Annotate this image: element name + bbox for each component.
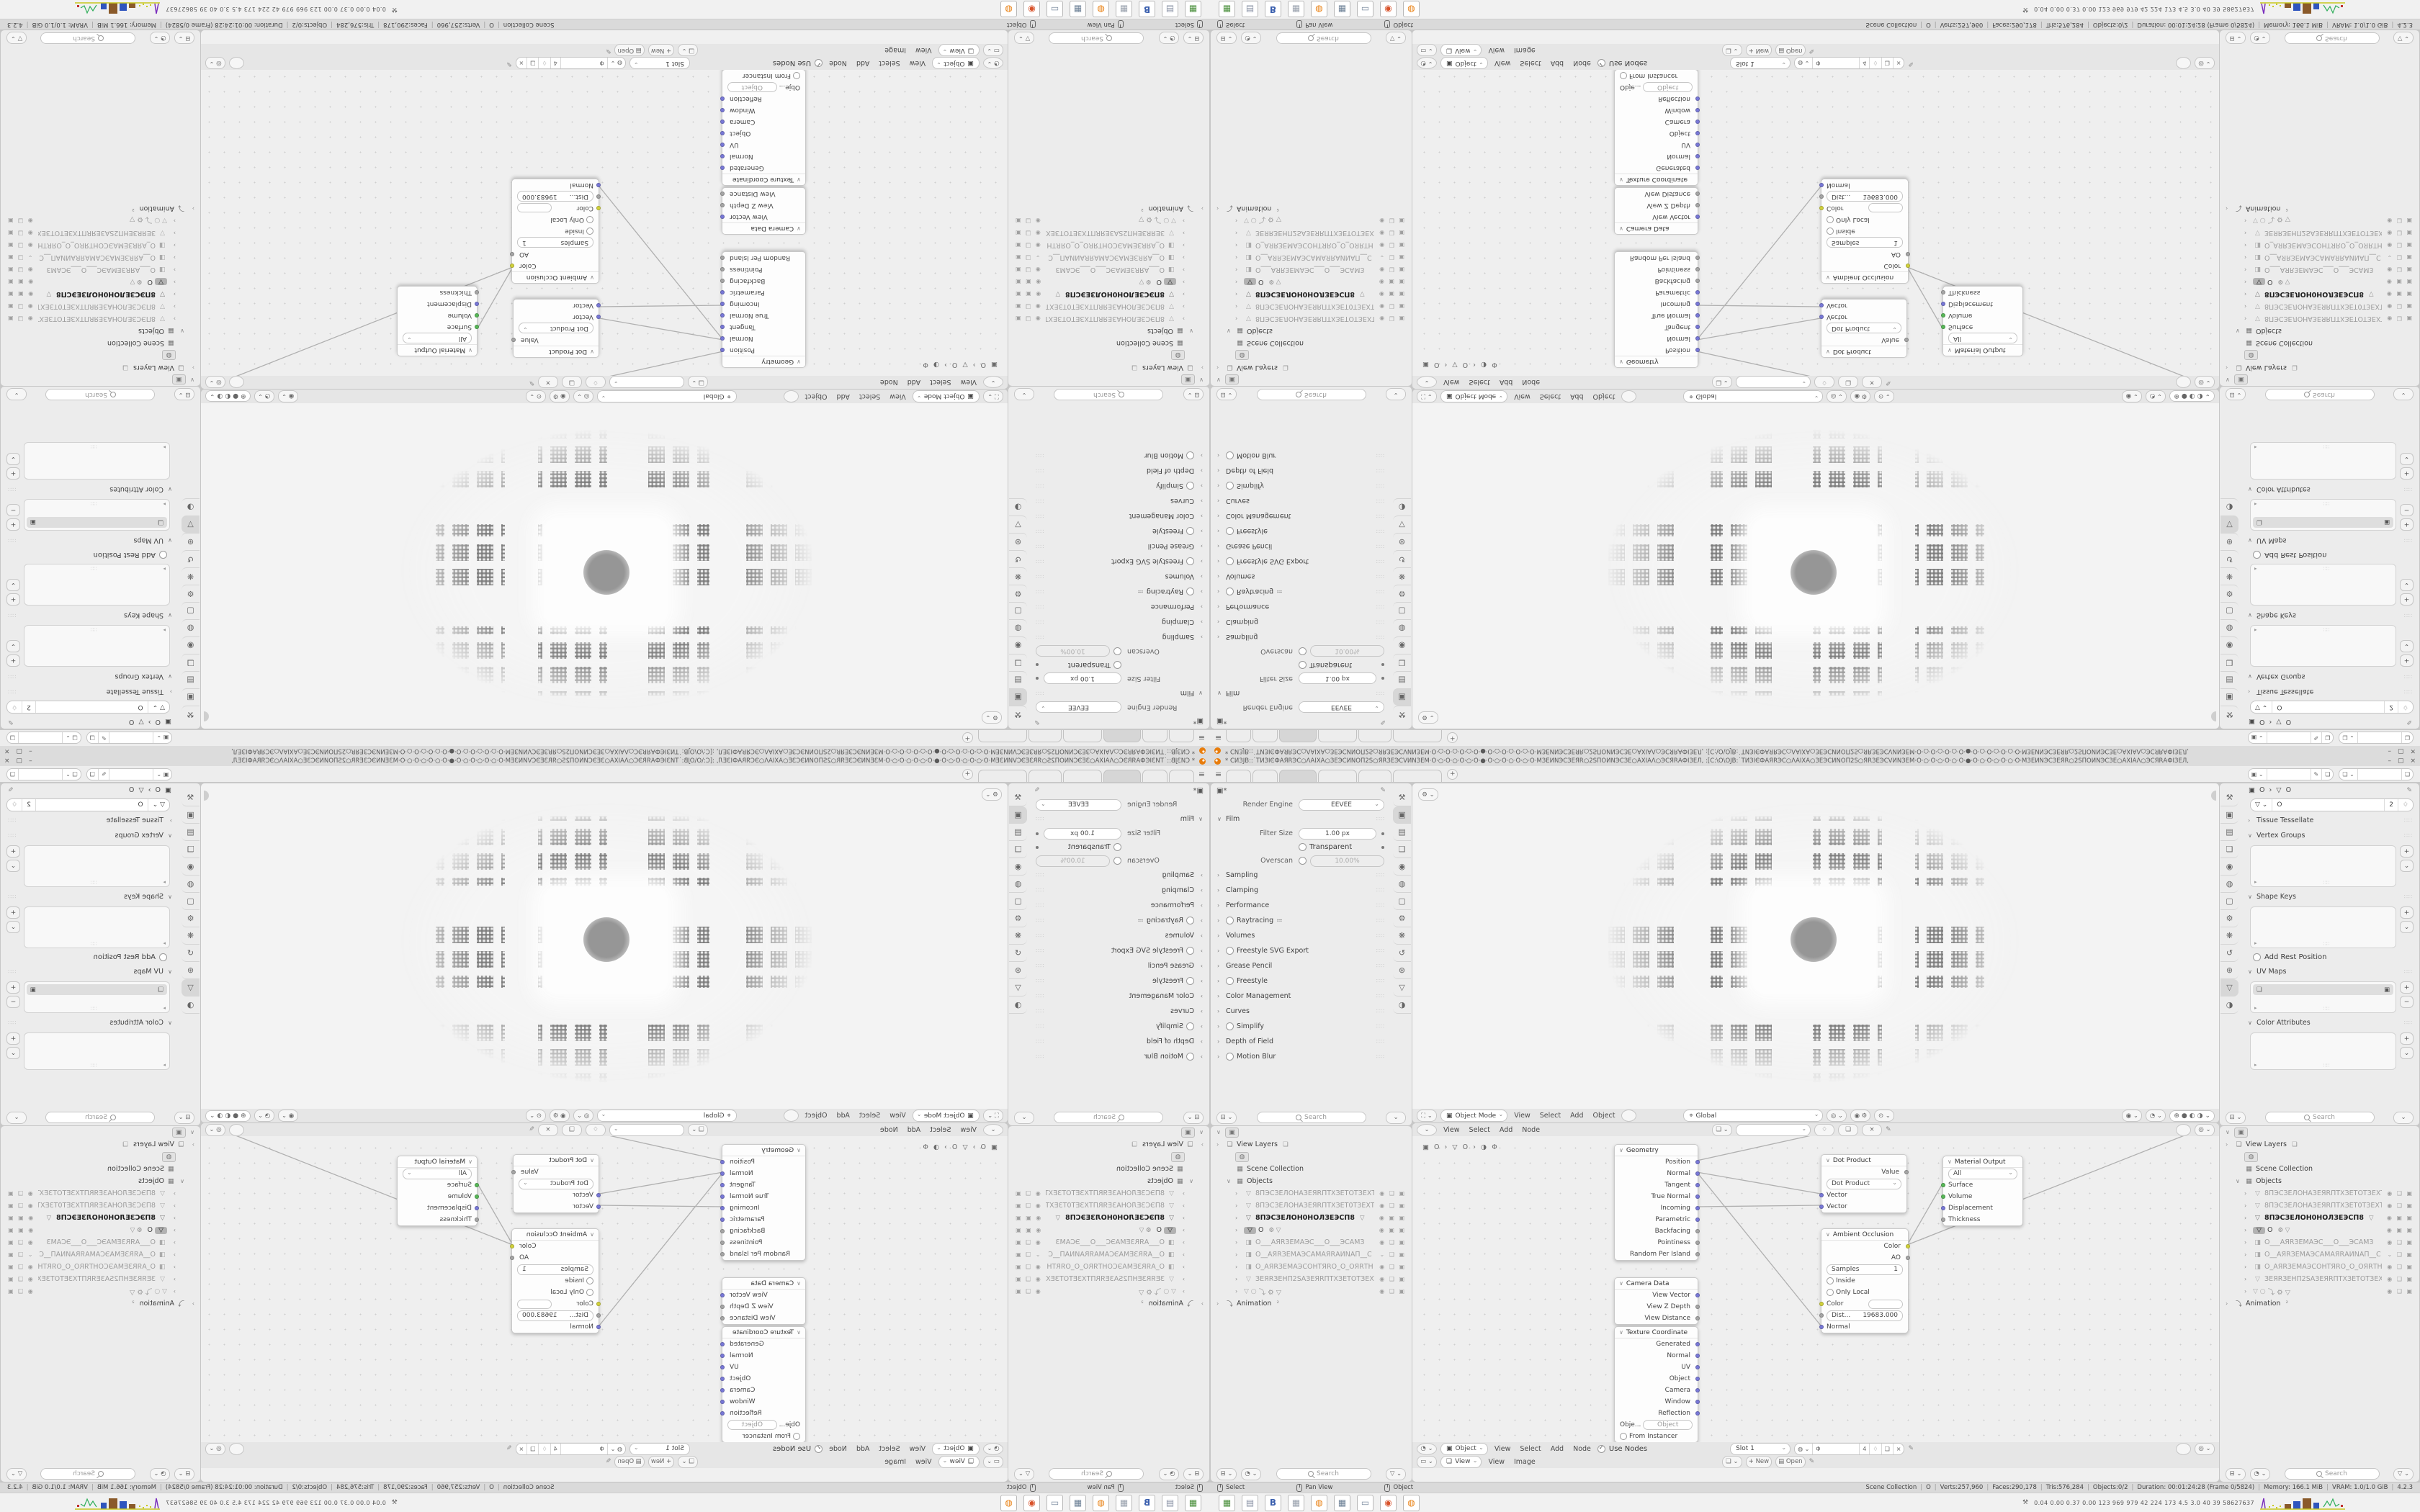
menu-hamburger-icon[interactable]: ≡ xyxy=(1198,770,1205,779)
shading-chevron[interactable]: ⌄ xyxy=(2205,1112,2210,1120)
shader-node[interactable]: ∨Ambient Occlusion Color AO Samples xyxy=(1821,1228,1909,1333)
gizmo-button[interactable]: ⊙ ⌄ xyxy=(1874,1110,1894,1122)
section-header[interactable]: › Motion Blur∷∷ xyxy=(1211,1049,1391,1064)
proportional-edit-button[interactable]: ◉ ⚙ xyxy=(550,390,570,402)
properties-tab-icon[interactable]: ⚒ xyxy=(1009,789,1027,806)
workspace-tab[interactable] xyxy=(1063,730,1102,742)
shading-solid-icon[interactable]: ● xyxy=(233,393,238,400)
uv-map-item[interactable]: ❏▣ xyxy=(2253,984,2393,995)
footer-extra-button[interactable] xyxy=(2176,58,2191,70)
shader-node[interactable]: ∨Dot Product Value Dot Product Vect xyxy=(513,1154,599,1213)
visibility-icons[interactable]: ◉ ▣ ▣ xyxy=(2387,291,2414,297)
shape-keys-listbox[interactable]: ▸∷∷ xyxy=(2250,564,2396,606)
node-row[interactable]: Object xyxy=(722,127,805,139)
node-row[interactable]: Value xyxy=(514,1166,599,1178)
pin-icon[interactable]: ✎ xyxy=(1380,787,1386,794)
filter-button[interactable]: ▽ ⌄ xyxy=(2393,1468,2414,1480)
add-workspace-button[interactable]: + xyxy=(962,769,973,780)
outliner-row[interactable]: ◍ xyxy=(2220,349,2419,361)
outliner-row[interactable]: › ▽ ЗЕЯRЗЕНП2SАЗЕЯRПТХЗЕТОТЗЕХТ ◉ ❑ ▣ xyxy=(1008,1273,1209,1285)
mesh-name[interactable]: O xyxy=(36,701,148,713)
output-socket[interactable] xyxy=(1695,108,1700,112)
outliner-row[interactable]: › ⤵ Animation ² xyxy=(1,1297,200,1310)
search-input[interactable]: Search xyxy=(2285,32,2380,44)
render-engine-dropdown[interactable]: EEVEE xyxy=(1036,702,1121,714)
output-socket[interactable] xyxy=(1695,120,1700,124)
section-header[interactable]: › Freestyle∷∷ xyxy=(1211,523,1391,539)
outliner-row[interactable]: › ◨ O___AЯRЗЕМАЭС___O___ЭСАМЗ ◉ ❑ ▣ xyxy=(1008,1236,1209,1248)
vertex-groups-listbox[interactable]: ▸∷∷ xyxy=(2250,845,2396,887)
taskbar-app-icon[interactable]: ▭ xyxy=(1047,1495,1063,1511)
slot-dropdown[interactable]: Slot 1 xyxy=(629,58,690,70)
animate-dot[interactable] xyxy=(1036,846,1039,849)
user-count[interactable]: 4 xyxy=(551,58,561,69)
fake-user-button[interactable]: ♢ xyxy=(2398,701,2413,713)
properties-tab-icon[interactable]: ▽ xyxy=(181,516,200,533)
properties-tab-icon[interactable]: ▢ xyxy=(1393,602,1411,619)
taskbar-app-icon[interactable]: B xyxy=(1139,1,1155,18)
editor-type-button[interactable]: ◔ ⌄ xyxy=(1417,1443,1437,1455)
outliner-row[interactable]: › ◨ O_AЯRЗЕМАЭСОНТЯRO_O_OЯRТН ◉ ❑ ▣ xyxy=(1,1261,200,1273)
visibility-icons[interactable]: ◉ ▣ ▣ xyxy=(6,279,33,285)
input-socket[interactable] xyxy=(1819,1302,1824,1306)
outliner-row[interactable]: ∨ ▦ Objects xyxy=(2220,1175,2419,1187)
browse-mesh-icon[interactable]: ▽ ⌄ xyxy=(148,799,169,811)
visibility-icons[interactable]: ◉ ❑ ▣ xyxy=(6,315,33,322)
menu-add[interactable]: Add xyxy=(1567,1112,1586,1120)
properties-tab-icon[interactable]: ⚒ xyxy=(1393,706,1411,723)
node-row[interactable]: Vector xyxy=(1821,300,1906,311)
properties-tab-icon[interactable]: ▢ xyxy=(2220,602,2238,619)
footer-extra-button[interactable] xyxy=(229,1443,244,1455)
menu-add[interactable]: Add xyxy=(1567,392,1586,400)
output-socket[interactable] xyxy=(720,302,725,306)
menu-select[interactable]: Select xyxy=(1466,379,1493,387)
workspace-tab[interactable] xyxy=(1142,770,1168,782)
pin-icon[interactable]: ✎ xyxy=(99,733,110,744)
node-row[interactable]: Reflection xyxy=(722,1408,805,1419)
outliner-row[interactable]: ▦ Scene Collection xyxy=(1,337,200,349)
menu-object[interactable]: Object xyxy=(802,392,830,400)
shader-node[interactable]: ∨Camera Data View Vector View Z Depth xyxy=(722,1277,806,1325)
outliner-row[interactable]: ∨ ▣ xyxy=(2220,374,2419,386)
vertex-groups-section[interactable]: ∨Vertex Groups∷∷ xyxy=(1,669,179,684)
input-socket[interactable] xyxy=(1941,1194,1945,1199)
menu-image[interactable]: Image xyxy=(882,47,909,55)
search-input[interactable]: Search xyxy=(2265,1112,2375,1123)
outliner-row[interactable]: › ▽ ЗЕЯRЗЕНП2SАЗЕЯRПТХЗЕТОТЗЕХТ ◉ ❑ ▣ xyxy=(2220,227,2419,239)
properties-tab-icon[interactable]: ⚒ xyxy=(181,789,200,806)
shading-chevron[interactable]: ⌄ xyxy=(210,1112,215,1120)
outliner-row[interactable]: › ▽ 8ПЭСЗЕЛОНАЗЕЯRПТХЗЕТ0ТЗЕХТ ◉ ❑ ▣ xyxy=(2220,300,2419,312)
animate-dot[interactable] xyxy=(1036,664,1039,667)
outliner-row[interactable]: › ▽ ЗЕЯRЗЕНП2SАЗЕЯRПТХЗЕТОТЗЕХТ ◉ ❑ ▣ xyxy=(1211,227,1412,239)
film-section-header[interactable]: ∨Film∷∷ xyxy=(1028,685,1209,701)
outliner-row[interactable]: ◍ xyxy=(1,349,200,361)
menu-add[interactable]: Add xyxy=(905,1126,923,1134)
properties-tab-icon[interactable]: ↺ xyxy=(2220,550,2238,567)
tissue-section[interactable]: ›Tissue Tessellate∷∷ xyxy=(1,684,179,699)
outliner-row[interactable]: › ▽ O ⚙ ▽ ◉ ▣ ▣ xyxy=(1,276,200,288)
visibility-icons[interactable]: ◉ ▣ ▣ xyxy=(1379,279,1406,285)
specials-button[interactable]: ⌄ xyxy=(2400,640,2414,652)
outliner-row[interactable]: ∨ ▦ Objects xyxy=(1008,325,1209,337)
output-socket[interactable] xyxy=(1695,1252,1700,1256)
output-socket[interactable] xyxy=(720,1305,725,1309)
output-socket[interactable] xyxy=(720,313,725,318)
shader-node[interactable]: ∨Texture Coordinate Generated Normal xyxy=(722,70,806,186)
transparent-checkbox[interactable] xyxy=(1299,843,1307,851)
node-row[interactable]: Random Per Island xyxy=(722,252,805,264)
specials-button[interactable]: ⌄ xyxy=(6,640,20,652)
properties-tab-icon[interactable]: ⊛ xyxy=(1009,533,1027,550)
filter-button[interactable]: ▽ ⌄ xyxy=(6,32,27,45)
properties-tab-icon[interactable]: ▽ xyxy=(2220,979,2238,996)
film-section-header[interactable]: ∨Film∷∷ xyxy=(1211,811,1391,827)
shading-mode-switch[interactable]: ⊕ ● ◐ ◑ ⌄ xyxy=(205,1110,251,1122)
specials-button[interactable]: ⌄ xyxy=(2400,860,2414,872)
outliner-row[interactable]: › ▽ O ⚙ ▽ ◉ ▣ ▣ xyxy=(1,1224,200,1236)
editor-type-button[interactable]: ⊟ ⌄ xyxy=(174,389,194,401)
menu-node[interactable]: Node xyxy=(826,1445,850,1453)
output-socket[interactable] xyxy=(1695,1354,1700,1358)
shape-keys-listbox[interactable]: ▸∷∷ xyxy=(2250,906,2396,948)
outliner-row[interactable]: › ⤵ Animation ² xyxy=(1,202,200,215)
section-header[interactable]: › Curves∷∷ xyxy=(1028,1004,1209,1019)
properties-tab-icon[interactable]: ❏ xyxy=(1009,654,1027,671)
outliner-row[interactable]: › ▽ 8ПЭСЗЕЛОН0НОЛЗЕЭСП8 ▽ ◉ ▣ ▣ xyxy=(1,288,200,300)
visibility-icons[interactable]: ◉ ❑ ▣ xyxy=(1379,1276,1406,1282)
options-chevron[interactable]: ⌄ xyxy=(2393,1112,2414,1124)
uv-maps-listbox[interactable]: ❏▣ ▸∷∷ xyxy=(24,981,170,1013)
outliner-row[interactable]: › ◨ O__AЯRЗЕМАЭСАМАЯRАЍNАП__C ⌄ ❑ ▣ xyxy=(1008,251,1209,264)
outliner-row[interactable]: › ▽ 8ПЭСЗЕЛОНАЗЕЯRПТХЗЕТОТЗЕХТ ◉ ❑ ▣ xyxy=(1211,312,1412,325)
properties-tab-icon[interactable]: ⚙ xyxy=(2220,910,2238,927)
visibility-icons[interactable]: ◉ ❑ ▣ xyxy=(1379,315,1406,322)
mode-dropdown[interactable]: ▣Object Mode xyxy=(1440,1110,1507,1122)
properties-tab-icon[interactable]: ▢ xyxy=(1393,893,1411,910)
shader-node[interactable]: ∨Geometry Position Normal Tangent xyxy=(1614,1144,1698,1261)
unlink-button[interactable]: × xyxy=(1893,58,1904,69)
visibility-icons[interactable]: ◉ ❑ ▣ xyxy=(1379,1264,1406,1270)
shading-solid-icon[interactable]: ● xyxy=(2182,393,2187,400)
outliner-row[interactable]: › ❏ View Layers ❏ xyxy=(1211,361,1412,374)
node-row[interactable]: Color xyxy=(1821,260,1908,271)
outliner-row[interactable]: › ◨ O__AЯRЗЕМАЭСАМАЯRАЍNАП__C ⌄ ❑ ▣ xyxy=(1,1248,200,1261)
menu-view[interactable]: View xyxy=(913,1458,935,1466)
taskbar-app-icon[interactable]: ◍ xyxy=(1000,1,1017,18)
shading-rendered-icon[interactable]: ◑ xyxy=(2197,393,2203,400)
shading-material-icon[interactable]: ◐ xyxy=(2190,393,2195,400)
section-header[interactable]: › Freestyle∷∷ xyxy=(1028,973,1209,989)
node-row[interactable]: Window xyxy=(1615,1396,1698,1408)
input-socket[interactable] xyxy=(475,1183,479,1187)
node-row[interactable]: Only Local xyxy=(1821,214,1908,225)
node-row[interactable]: Displacement xyxy=(1943,1202,2022,1214)
output-socket[interactable] xyxy=(1695,290,1700,294)
node-title[interactable]: ∨Material Output xyxy=(1943,344,2022,356)
user-count[interactable]: 2 xyxy=(2384,799,2398,811)
section-header[interactable]: › Grease Pencil∷∷ xyxy=(1028,958,1209,973)
node-row[interactable]: Only Local xyxy=(512,214,599,225)
outliner-row[interactable]: ▦ Scene Collection xyxy=(1008,1163,1209,1175)
outliner-row[interactable]: › ▽ ○ ⤵ ⚙ ▽ ◉ ❑ ▣ xyxy=(1008,215,1209,227)
fake-user-button[interactable]: ♢ xyxy=(586,377,606,389)
pin-icon[interactable]: ✎ xyxy=(1908,1445,1914,1452)
output-socket[interactable] xyxy=(510,252,514,256)
workspace-tab-active[interactable] xyxy=(1103,770,1141,782)
node-row[interactable]: Generated xyxy=(1615,1338,1698,1350)
slot-dropdown[interactable]: Slot 1 xyxy=(1730,58,1791,70)
editor-type-button[interactable]: ⌄ xyxy=(1417,1124,1437,1136)
pin-icon[interactable]: ✎ xyxy=(1809,1458,1815,1465)
outliner-row[interactable]: ▦ Scene Collection xyxy=(1,1163,200,1175)
uv-map-item[interactable]: ❏▣ xyxy=(27,984,167,995)
node-row[interactable]: Normal xyxy=(512,179,599,191)
properties-tab-icon[interactable]: ◑ xyxy=(2220,498,2238,516)
outliner-row[interactable]: › ▽ 8ПЭСЗЕЛОНАЗЕЯRПТХЗЕТОТЗЕХТ ◉ ❑ ▣ xyxy=(2220,312,2419,325)
output-socket[interactable] xyxy=(1695,1316,1700,1320)
output-socket[interactable] xyxy=(1695,131,1700,135)
taskbar-app-icon[interactable]: ◉ xyxy=(1380,1,1397,18)
outliner-row[interactable]: › ▽ ○ ⤵ ⚙ ▽ ◉ ❑ ▣ xyxy=(1,1285,200,1297)
fake-user-button[interactable]: ♢ xyxy=(1814,377,1834,389)
outliner-row[interactable]: › ▽ 8ПЭСЗЕЛОНАЗЕЯRПТХЗЕТ0ТЗЕХТ ◉ ❑ ▣ xyxy=(1,1200,200,1212)
node-row[interactable]: Dot Product xyxy=(514,1178,599,1189)
mesh-datablock[interactable]: ▽ ⌄ O 2 ♢ xyxy=(2250,701,2414,714)
node-row[interactable]: Window xyxy=(722,104,805,116)
output-socket[interactable] xyxy=(720,215,725,219)
user-count[interactable]: 2 xyxy=(2384,701,2398,713)
properties-tab-icon[interactable]: ◉ xyxy=(1009,858,1027,876)
output-socket[interactable] xyxy=(1906,264,1910,268)
new-copy-button[interactable]: ❏ xyxy=(1838,377,1858,389)
node-row[interactable]: From Instancer xyxy=(1615,1431,1698,1442)
visibility-icons[interactable]: ◉ ❑ ▣ xyxy=(2387,266,2414,273)
menu-object[interactable]: Object xyxy=(1590,1112,1618,1120)
mesh-datablock[interactable]: ▽ ⌄ O 2 ♢ xyxy=(2250,798,2414,811)
pin-icon[interactable]: ✎ xyxy=(1886,1126,1891,1133)
search-input[interactable]: Search xyxy=(1276,1468,1371,1480)
node-row[interactable]: Window xyxy=(722,1396,805,1408)
visibility-icons[interactable]: ◉ ❑ ▣ xyxy=(2387,1190,2414,1197)
output-socket[interactable] xyxy=(1695,1388,1700,1392)
shading-material-icon[interactable]: ◐ xyxy=(2190,1112,2195,1120)
output-socket[interactable] xyxy=(1695,203,1700,207)
output-socket[interactable] xyxy=(720,1241,725,1245)
mode-extra-button[interactable] xyxy=(1621,1110,1636,1122)
node-row[interactable]: Volume xyxy=(398,310,477,321)
node-row[interactable]: Incoming xyxy=(1615,298,1698,310)
properties-tab-icon[interactable]: ◉ xyxy=(1393,858,1411,876)
node-row[interactable]: Position xyxy=(1615,344,1698,356)
outliner-row[interactable]: › ▽ 8ПЭСЗЕЛОН0НОЛЗЕЭСП8 ▽ ◉ ▣ ▣ xyxy=(1211,288,1412,300)
input-socket[interactable] xyxy=(1819,1325,1824,1329)
node-row[interactable]: Tangent xyxy=(1615,321,1698,333)
viewlayer-selector[interactable]: ❏ ⌄ ❏ xyxy=(6,768,81,780)
node-row[interactable]: View Vector xyxy=(1615,211,1698,222)
properties-tab-icon[interactable]: ❋ xyxy=(181,927,200,945)
tree-type-button[interactable]: ❏ ⌄ xyxy=(1712,1124,1732,1136)
editor-type-button[interactable]: ⊟ ⌄ xyxy=(1183,32,1204,45)
node-row[interactable]: View Vector xyxy=(722,211,805,222)
film-section-header[interactable]: ∨Film∷∷ xyxy=(1211,685,1391,701)
node-title[interactable]: ∨Ambient Occlusion xyxy=(512,1229,599,1241)
animate-dot[interactable] xyxy=(1381,832,1384,835)
color-attributes-section[interactable]: ∨Color Attributes∷∷ xyxy=(2241,1015,2419,1030)
visibility-icons[interactable]: ◉ ▣ ▣ xyxy=(1014,279,1041,285)
copy-button[interactable]: ❏ xyxy=(1881,1444,1893,1454)
new-copy-button[interactable]: ❏ xyxy=(562,1124,582,1136)
editor-type-button[interactable]: ▭ ⌄ xyxy=(1417,1456,1437,1468)
search-input[interactable]: Search xyxy=(41,1468,136,1480)
visibility-icons[interactable]: ◉ ❑ ▣ xyxy=(1379,1239,1406,1246)
color-attributes-listbox[interactable]: ▸∷∷ xyxy=(24,1032,170,1070)
outliner-row[interactable]: › ◨ O__AЯRЗЕМАЭСАМАЯRАЍNАП__C ⌄ ❑ ▣ xyxy=(2220,1248,2419,1261)
node-row[interactable]: Reflection xyxy=(722,93,805,104)
node-row[interactable]: AO xyxy=(1821,1252,1908,1264)
outliner-row[interactable]: ▦ Scene Collection xyxy=(1211,1163,1412,1175)
workspace-tab[interactable] xyxy=(1393,730,1442,742)
color-attributes-section[interactable]: ∨Color Attributes∷∷ xyxy=(2241,482,2419,497)
specials-button[interactable]: ⌄ xyxy=(6,579,20,591)
visibility-icons[interactable]: ◉ ❑ ▣ xyxy=(1379,1288,1406,1295)
properties-tab-icon[interactable]: ⊛ xyxy=(2220,962,2238,979)
menu-object[interactable]: Object xyxy=(1590,392,1618,400)
output-socket[interactable] xyxy=(720,1400,725,1404)
input-socket[interactable] xyxy=(1941,325,1945,329)
pin-icon[interactable]: ✎ xyxy=(606,47,611,54)
input-socket[interactable] xyxy=(596,183,601,187)
open-image-button[interactable]: ▤ Open xyxy=(614,1456,644,1468)
remove-button[interactable]: − xyxy=(2400,504,2414,516)
properties-tab-icon[interactable]: ▢ xyxy=(1009,602,1027,619)
uv-maps-listbox[interactable]: ❏▣ ▸∷∷ xyxy=(2250,981,2396,1013)
copy-button[interactable]: ❏ xyxy=(527,58,539,69)
properties-tab-icon[interactable]: ❏ xyxy=(181,654,200,671)
properties-tab-icon[interactable]: ↺ xyxy=(2220,945,2238,962)
visibility-icons[interactable]: ◉ ▣ ▣ xyxy=(1014,1215,1041,1221)
copy-icon[interactable]: ❏ xyxy=(7,769,19,780)
shading-wireframe-icon[interactable]: ⊕ xyxy=(241,1112,246,1120)
visibility-icons[interactable]: ◉ ❑ ▣ xyxy=(6,1190,33,1197)
node-row[interactable]: Obje...Object xyxy=(722,1419,805,1431)
editor-type-button[interactable]: ⛶ ⌄ xyxy=(983,1110,1003,1122)
add-button[interactable]: + xyxy=(6,467,20,480)
outliner-row[interactable]: ◍ xyxy=(1211,349,1412,361)
properties-tab-icon[interactable]: ▤ xyxy=(1393,824,1411,841)
fake-user-button[interactable]: ♢ xyxy=(1814,1124,1834,1136)
open-image-button[interactable]: ▤ Open xyxy=(1775,1456,1805,1468)
add-workspace-button[interactable]: + xyxy=(1447,733,1458,744)
outliner-row[interactable]: › ⤵ Animation ² xyxy=(2220,1297,2419,1310)
node-row[interactable]: Color xyxy=(512,202,599,214)
properties-tab-icon[interactable]: ◍ xyxy=(1393,876,1411,893)
node-row[interactable]: Camera xyxy=(1615,1385,1698,1396)
unlink-button[interactable]: × xyxy=(538,1124,558,1136)
outliner-row[interactable]: › ◨ O_AЯRЗЕМАЭСОНТЯRO_O_OЯRТН ◉ ❑ ▣ xyxy=(1008,1261,1209,1273)
node-row[interactable]: Vector xyxy=(514,300,599,311)
editor-type-button[interactable]: ⛶ ⌄ xyxy=(1417,390,1437,402)
section-header[interactable]: › Clamping∷∷ xyxy=(1028,883,1209,898)
outliner-row[interactable]: › ▽ 8ПЭСЗЕЛОНАЗЕЯRПТХЗЕТ0ТЗЕХТ ◉ ❑ ▣ xyxy=(1211,300,1412,312)
overscan-checkbox[interactable] xyxy=(1299,647,1307,655)
visibility-icons[interactable]: ◉ ❑ ▣ xyxy=(1014,1264,1041,1270)
taskbar-app-icon[interactable]: ◍ xyxy=(1311,1,1327,18)
visibility-icons[interactable]: ◉ ❑ ▣ xyxy=(2387,1276,2414,1282)
viewport-options-button[interactable]: ⚙ ⌄ xyxy=(1418,711,1438,724)
image-browse-button[interactable]: ❏ ⌄ xyxy=(1722,45,1742,57)
editor-type-button[interactable]: ⊟ ⌄ xyxy=(2226,389,2246,401)
filter-button[interactable]: ▽ ⌄ xyxy=(1014,32,1034,45)
copy-icon[interactable]: ❏ xyxy=(2321,769,2333,780)
editor-type-button[interactable]: ◔ ⌄ xyxy=(1417,58,1437,70)
section-header[interactable]: › Sampling∷∷ xyxy=(1211,868,1391,883)
output-socket[interactable] xyxy=(720,1354,725,1358)
outliner-row[interactable]: ∨ ▣ xyxy=(1,1126,200,1138)
add-workspace-button[interactable]: + xyxy=(1447,769,1458,780)
outliner-row[interactable]: ∨ ▣ xyxy=(1,374,200,386)
node-row[interactable]: All xyxy=(398,1168,477,1179)
shading-wireframe-icon[interactable]: ⊕ xyxy=(2174,1112,2179,1120)
close-button[interactable]: × xyxy=(4,757,10,765)
pin-icon[interactable]: ✎ xyxy=(1034,718,1040,725)
node-row[interactable]: View Distance xyxy=(722,188,805,199)
section-header[interactable]: › Sampling∷∷ xyxy=(1028,868,1209,883)
shading-material-icon[interactable]: ◐ xyxy=(225,1112,230,1120)
visibility-icons[interactable]: ◉ ❑ ▣ xyxy=(6,303,33,310)
section-checkbox[interactable] xyxy=(1226,947,1234,955)
menu-select[interactable]: Select xyxy=(856,1112,883,1120)
section-header[interactable]: › Performance∷∷ xyxy=(1211,898,1391,913)
node-row[interactable]: View Z Depth xyxy=(1615,1301,1698,1313)
unlink-button[interactable]: × xyxy=(538,377,558,389)
search-input[interactable]: Search xyxy=(2265,389,2375,400)
visibility-icons[interactable]: ◉ ▣ ▣ xyxy=(6,1215,33,1221)
add-button[interactable]: + xyxy=(2400,518,2414,531)
animate-dot[interactable] xyxy=(1381,664,1384,667)
visibility-icons[interactable]: ◉ ❑ ▣ xyxy=(1014,1190,1041,1197)
shading-rendered-icon[interactable]: ◑ xyxy=(218,393,223,400)
node-row[interactable]: Object xyxy=(1615,127,1698,139)
user-count[interactable]: 2 xyxy=(22,701,36,713)
tree-type-button[interactable]: ❏ ⌄ xyxy=(688,377,708,389)
taskbar-app-icon[interactable]: ◍ xyxy=(1403,1495,1420,1511)
pin-icon[interactable]: ✎ xyxy=(2406,787,2412,794)
node-title[interactable]: ∨Geometry xyxy=(722,356,805,367)
section-header[interactable]: › Depth of Field∷∷ xyxy=(1211,463,1391,478)
specials-button[interactable]: ⌄ xyxy=(6,921,20,933)
uv-maps-section[interactable]: ∨UV Maps∷∷ xyxy=(2241,964,2419,979)
workspace-tab[interactable] xyxy=(1063,770,1102,782)
filter-button[interactable]: ▽ ⌄ xyxy=(1386,32,1406,45)
viewport-3d[interactable]: ⚙ ⌄ ⛶ ⌄ ▣Object Mode View Select Add Obj… xyxy=(1412,390,2219,729)
properties-tab-icon[interactable]: ◉ xyxy=(181,858,200,876)
visibility-icons[interactable]: ◉ ❑ ▣ xyxy=(1014,1276,1041,1282)
input-socket[interactable] xyxy=(1941,1183,1945,1187)
menu-image[interactable]: Image xyxy=(1511,1458,1538,1466)
properties-tab-icon[interactable]: ❏ xyxy=(2220,654,2238,671)
vertex-groups-listbox[interactable]: ▸∷∷ xyxy=(24,845,170,887)
shader-node[interactable]: ∨Material Output All Surface Volume xyxy=(397,1156,478,1226)
menu-view[interactable]: View xyxy=(1440,379,1463,387)
outliner-row[interactable]: ▦ Scene Collection xyxy=(2220,337,2419,349)
taskbar-app-icon[interactable]: B xyxy=(1265,1,1281,18)
properties-tab-icon[interactable]: ⚒ xyxy=(181,706,200,723)
pin-icon[interactable]: ✎ xyxy=(8,787,14,794)
viewport-3d[interactable]: ⚙ ⌄ ⛶ ⌄ ▣Object Mode View Select Add Obj… xyxy=(1412,783,2219,1122)
outliner-row[interactable]: › ▽ 8ПЭСЗЕЛОН0НОЛЗЕЭСП8 ▽ ◉ ▣ ▣ xyxy=(1211,1212,1412,1224)
